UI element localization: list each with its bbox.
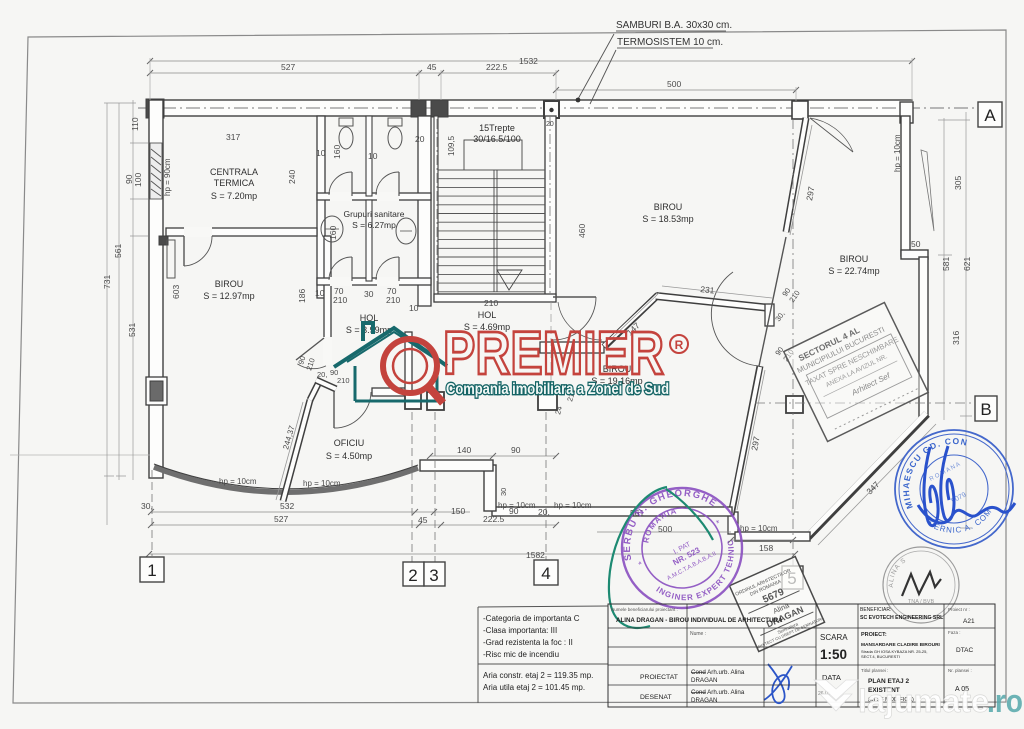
svg-text:Cond Arh.urb. Alina: Cond Arh.urb. Alina (691, 669, 745, 676)
svg-text:Titlul plansei :: Titlul plansei : (861, 668, 888, 673)
svg-text:DRAGAN: DRAGAN (691, 677, 717, 684)
svg-text:A21: A21 (963, 618, 975, 625)
svg-text:109,5: 109,5 (447, 135, 456, 156)
svg-text:-Grad rezistenta la foc : II: -Grad rezistenta la foc : II (483, 638, 573, 647)
svg-text:Compania imobiliara a Zonei de: Compania imobiliara a Zonei de Sud (446, 381, 669, 398)
svg-text:SC EVOTECH ENGINEERING SRL: SC EVOTECH ENGINEERING SRL (860, 615, 944, 621)
svg-text:158: 158 (759, 543, 773, 553)
svg-text:160: 160 (328, 226, 338, 240)
svg-text:4: 4 (541, 564, 550, 583)
svg-text:222.5: 222.5 (486, 62, 508, 72)
svg-text:hp = 10cm: hp = 10cm (219, 477, 257, 486)
svg-text:15Trepte: 15Trepte (479, 123, 515, 133)
svg-text:210: 210 (386, 295, 400, 305)
svg-text:Grupuri sanitare: Grupuri sanitare (344, 209, 405, 219)
svg-text:110: 110 (130, 117, 140, 131)
svg-text:10: 10 (315, 288, 325, 298)
svg-text:DESENAT: DESENAT (640, 694, 672, 701)
svg-text:OFICIU: OFICIU (334, 438, 365, 448)
svg-text:10: 10 (409, 303, 419, 313)
svg-text:hp = 10cm: hp = 10cm (554, 501, 592, 510)
svg-text:20,: 20, (538, 507, 550, 517)
svg-text:45: 45 (418, 515, 428, 525)
svg-text:BIROU: BIROU (840, 254, 869, 264)
svg-text:561: 561 (113, 244, 123, 258)
svg-text:3: 3 (429, 566, 438, 585)
svg-text:S = 22.74mp: S = 22.74mp (828, 266, 879, 276)
svg-text:Aria constr. etaj 2 = 119.35 m: Aria constr. etaj 2 = 119.35 mp. (483, 671, 593, 680)
svg-text:100: 100 (133, 173, 143, 187)
svg-text:10: 10 (368, 151, 378, 161)
svg-text:.ro: .ro (987, 683, 1023, 719)
svg-text:50: 50 (911, 239, 921, 249)
svg-text:210: 210 (337, 376, 350, 385)
svg-text:ALINA DRAGAN - BIROU INDIVIDUA: ALINA DRAGAN - BIROU INDIVIDUAL DE ARHIT… (616, 617, 783, 624)
svg-text:Cond Arh.urb. Alina: Cond Arh.urb. Alina (691, 689, 745, 696)
svg-text:160: 160 (332, 145, 342, 159)
svg-text:603: 603 (171, 285, 181, 299)
svg-text:186: 186 (297, 289, 307, 303)
svg-text:-Categoria de importanta C: -Categoria de importanta C (483, 614, 580, 623)
svg-text:460: 460 (577, 224, 587, 238)
svg-text:SCARA: SCARA (820, 633, 848, 642)
svg-text:S = 18.53mp: S = 18.53mp (642, 214, 693, 224)
svg-text:BENEFICIAR:: BENEFICIAR: (860, 607, 891, 613)
svg-text:DRAGAN: DRAGAN (691, 697, 717, 704)
svg-text:1532: 1532 (519, 56, 538, 66)
svg-text:hp = 90cm: hp = 90cm (163, 158, 172, 196)
svg-text:Nr. plansei :: Nr. plansei : (948, 668, 972, 673)
svg-text:Faza :: Faza : (948, 630, 961, 635)
svg-text:Numele beneficiarului proiecta: Numele beneficiarului proiectant : (611, 607, 678, 612)
svg-text:222.5: 222.5 (483, 514, 505, 524)
svg-text:R: R (675, 338, 684, 352)
svg-text:hp = 10cm: hp = 10cm (498, 501, 536, 510)
svg-text:317: 317 (226, 132, 240, 142)
svg-text:A: A (984, 106, 996, 125)
svg-text:SAMBURI B.A. 30x30 cm.: SAMBURI B.A. 30x30 cm. (616, 20, 732, 31)
svg-text:PROIECT:: PROIECT: (861, 632, 887, 638)
svg-text:BIROU: BIROU (654, 202, 683, 212)
svg-text:532: 532 (280, 501, 294, 511)
svg-text:hp = 10cm: hp = 10cm (893, 134, 902, 172)
svg-text:30: 30 (499, 488, 508, 496)
svg-text:BIROU: BIROU (215, 279, 244, 289)
svg-text:500: 500 (667, 79, 681, 89)
svg-text:581: 581 (941, 257, 951, 271)
svg-text:305: 305 (953, 176, 963, 190)
svg-text:20: 20 (546, 121, 554, 128)
svg-text:-Risc mic de incendiu: -Risc mic de incendiu (483, 650, 559, 659)
svg-text:527: 527 (281, 62, 295, 72)
svg-text:210: 210 (484, 298, 498, 308)
svg-text:2: 2 (408, 566, 417, 585)
svg-text:531: 531 (127, 323, 137, 337)
svg-text:621: 621 (962, 257, 972, 271)
svg-text:240: 240 (287, 170, 297, 184)
svg-text:PROIECTAT: PROIECTAT (640, 674, 678, 681)
svg-text:Proiect nr :: Proiect nr : (948, 607, 970, 612)
svg-text:1582: 1582 (526, 550, 545, 560)
svg-text:231: 231 (700, 284, 715, 295)
svg-text:20,: 20, (317, 370, 327, 379)
svg-text:140: 140 (457, 445, 471, 455)
svg-text:B: B (980, 400, 991, 419)
svg-text:90: 90 (511, 445, 521, 455)
svg-text:DTAC: DTAC (956, 647, 974, 654)
svg-text:Nume :: Nume : (690, 631, 706, 637)
svg-text:TERMICA: TERMICA (214, 178, 255, 188)
svg-text:TERMOSISTEM 10 cm.: TERMOSISTEM 10 cm. (617, 37, 723, 48)
svg-text:PREMIER: PREMIER (443, 319, 664, 387)
svg-text:SECT.4, BUCURESTI: SECT.4, BUCURESTI (861, 654, 900, 659)
svg-text:731: 731 (102, 275, 112, 289)
svg-text:30,: 30, (141, 501, 153, 511)
svg-text:S = 6.27mp: S = 6.27mp (352, 220, 396, 230)
svg-text:Aria utila etaj 2 = 101.45 mp.: Aria utila etaj 2 = 101.45 mp. (483, 683, 585, 692)
svg-text:45: 45 (427, 62, 437, 72)
svg-text:210: 210 (333, 295, 347, 305)
svg-text:CENTRALA: CENTRALA (210, 167, 258, 177)
svg-text:hp = 10cm: hp = 10cm (740, 524, 778, 533)
svg-text:S = 12.97mp: S = 12.97mp (203, 291, 254, 301)
svg-text:316: 316 (951, 331, 961, 345)
svg-text:500: 500 (658, 524, 672, 534)
svg-text:MANSARDARE CLADIRE BIROURI: MANSARDARE CLADIRE BIROURI (861, 642, 941, 648)
svg-text:150: 150 (451, 506, 465, 516)
svg-text:20: 20 (415, 134, 425, 144)
svg-text:lajumate: lajumate (858, 683, 989, 719)
svg-text:527: 527 (274, 514, 288, 524)
svg-text:S = 7.20mp: S = 7.20mp (211, 191, 257, 201)
svg-text:10: 10 (316, 148, 326, 158)
svg-text:1:50: 1:50 (820, 647, 847, 662)
svg-text:S = 4.50mp: S = 4.50mp (326, 451, 372, 461)
svg-text:hp = 10cm: hp = 10cm (303, 479, 341, 488)
svg-text:1: 1 (147, 561, 156, 580)
svg-text:-Clasa importanta: III: -Clasa importanta: III (483, 626, 557, 635)
svg-text:30/16.5/100: 30/16.5/100 (473, 134, 521, 144)
svg-text:30: 30 (364, 289, 374, 299)
